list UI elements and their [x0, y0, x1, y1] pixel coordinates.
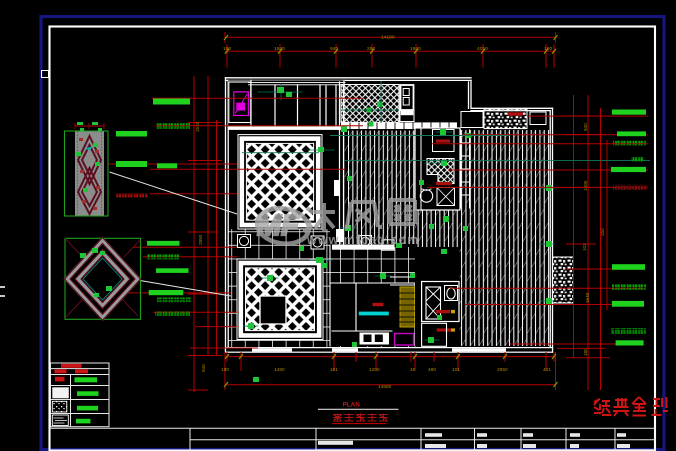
- svg-text:101: 101: [582, 243, 587, 251]
- svg-text:180: 180: [223, 46, 231, 52]
- svg-text:1480: 1480: [274, 367, 285, 373]
- svg-text:1800: 1800: [583, 180, 588, 191]
- svg-text:4010: 4010: [477, 46, 488, 52]
- svg-text:PLAN: PLAN: [343, 402, 361, 409]
- svg-text:180: 180: [544, 46, 552, 52]
- svg-text:940: 940: [330, 46, 338, 52]
- svg-text:2850: 2850: [198, 234, 203, 245]
- svg-text:940: 940: [583, 123, 588, 131]
- svg-text:250: 250: [367, 46, 375, 52]
- svg-text:180: 180: [583, 348, 588, 356]
- svg-text:180: 180: [221, 367, 229, 373]
- svg-text:1200: 1200: [369, 367, 380, 373]
- svg-text:14180: 14180: [381, 35, 395, 41]
- svg-text:www.mfcad.com: www.mfcad.com: [306, 233, 419, 247]
- svg-text:1540: 1540: [585, 292, 590, 303]
- svg-text:1540: 1540: [195, 121, 200, 132]
- svg-text:480: 480: [428, 367, 436, 373]
- svg-text:940: 940: [201, 364, 206, 372]
- svg-text:40: 40: [410, 367, 416, 373]
- svg-text:1940: 1940: [410, 46, 421, 52]
- svg-text:401: 401: [543, 367, 551, 373]
- svg-text:14680: 14680: [378, 384, 392, 390]
- svg-text:MF: MF: [257, 210, 300, 242]
- svg-text:2850: 2850: [497, 367, 508, 373]
- svg-text:1540: 1540: [274, 46, 285, 52]
- svg-text:250: 250: [600, 228, 605, 236]
- svg-text:101: 101: [330, 367, 338, 373]
- svg-text:101: 101: [452, 367, 460, 373]
